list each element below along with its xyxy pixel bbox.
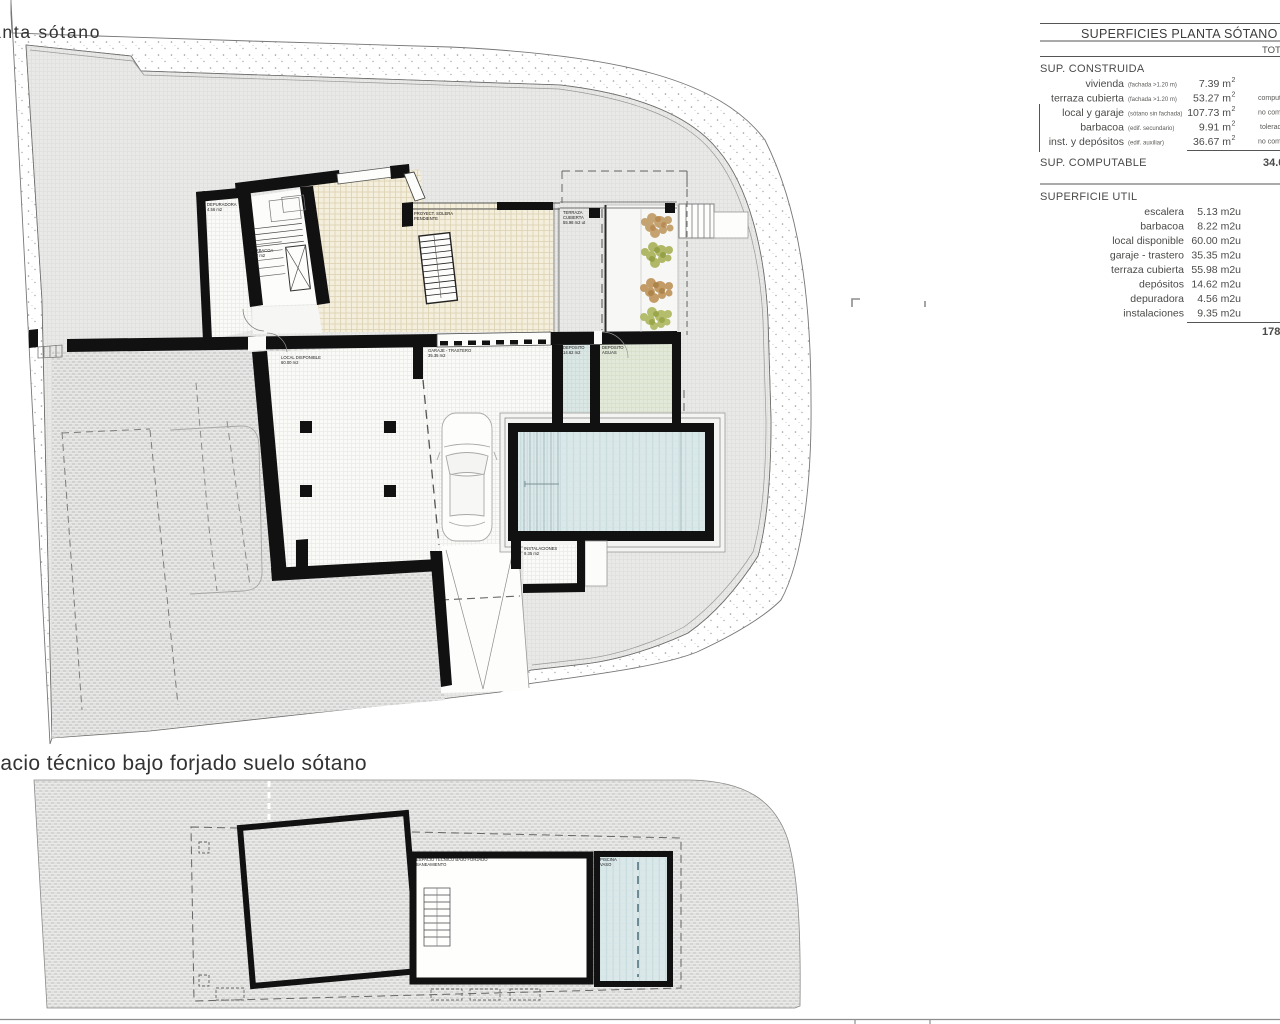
svg-text:2: 2: [1232, 92, 1236, 99]
svg-text:2: 2: [1232, 77, 1236, 84]
svg-text:local disponible: local disponible: [1112, 235, 1184, 247]
svg-text:8.22 m2: 8.22 m2: [250, 253, 266, 258]
svg-text:53.27 m: 53.27 m: [1193, 93, 1231, 105]
svg-text:4.56 m2: 4.56 m2: [207, 207, 223, 212]
svg-text:terraza cubierta: terraza cubierta: [1111, 264, 1184, 276]
svg-text:barbacoa: barbacoa: [1080, 122, 1124, 134]
svg-text:14.62 m2: 14.62 m2: [563, 350, 581, 355]
svg-text:(fachada >1.20 m): (fachada >1.20 m): [1128, 97, 1177, 103]
svg-text:(sótano sin fachada): (sótano sin fachada): [1128, 112, 1182, 118]
svg-text:instalaciones: instalaciones: [1123, 308, 1184, 320]
svg-text:2: 2: [1232, 121, 1236, 128]
svg-text:35.35 m2u: 35.35 m2u: [1191, 250, 1241, 262]
svg-text:inst. y depósitos: inst. y depósitos: [1049, 136, 1124, 148]
svg-text:escalera: escalera: [1144, 206, 1184, 218]
svg-text:55.98 m2u: 55.98 m2u: [1191, 264, 1241, 276]
svg-text:terraza cubierta: terraza cubierta: [1051, 93, 1124, 105]
svg-text:computa: computa: [1258, 95, 1280, 102]
svg-text:TOTAL: TOTAL: [1262, 45, 1280, 56]
svg-text:SANEAMIENTO: SANEAMIENTO: [416, 862, 447, 867]
svg-text:vivienda: vivienda: [1085, 78, 1124, 90]
svg-text:SUPERFICIE UTIL: SUPERFICIE UTIL: [1040, 191, 1137, 203]
svg-text:35.35 m2: 35.35 m2: [428, 353, 446, 358]
svg-text:SUP. COMPUTABLE: SUP. COMPUTABLE: [1040, 157, 1147, 169]
svg-text:2: 2: [1232, 106, 1236, 113]
svg-text:depósitos: depósitos: [1139, 279, 1184, 291]
svg-text:barbacoa: barbacoa: [1140, 221, 1184, 233]
svg-text:5.13 m2u: 5.13 m2u: [1197, 206, 1241, 218]
svg-text:SUPERFICIES PLANTA SÓTANO: SUPERFICIES PLANTA SÓTANO: [1081, 26, 1278, 41]
svg-text:107.73 m: 107.73 m: [1187, 107, 1231, 119]
svg-text:14.62 m2u: 14.62 m2u: [1191, 279, 1241, 291]
svg-text:9.91 m: 9.91 m: [1199, 122, 1231, 134]
svg-text:local y garaje: local y garaje: [1062, 107, 1124, 119]
svg-text:garaje - trastero: garaje - trastero: [1110, 250, 1184, 262]
svg-text:(edif. auxiliar): (edif. auxiliar): [1128, 141, 1164, 147]
svg-text:9.35 m2u: 9.35 m2u: [1197, 308, 1241, 320]
svg-text:7.39 m: 7.39 m: [1199, 78, 1231, 90]
svg-text:178.56: 178.56: [1262, 326, 1280, 338]
svg-text:36.67 m: 36.67 m: [1193, 136, 1231, 148]
svg-text:no comp: no comp: [1258, 139, 1280, 146]
svg-text:depuradora: depuradora: [1130, 293, 1184, 305]
svg-text:9.35 m2: 9.35 m2: [524, 551, 540, 556]
svg-text:Espacio técnico bajo forjado s: Espacio técnico bajo forjado suelo sótan…: [0, 752, 367, 775]
svg-text:4.56 m2u: 4.56 m2u: [1197, 293, 1241, 305]
svg-text:PENDIENTE: PENDIENTE: [414, 216, 438, 221]
svg-text:no comp: no comp: [1258, 110, 1280, 117]
svg-text:Planta sótano: Planta sótano: [0, 22, 101, 42]
svg-text:55.98 m2 ut: 55.98 m2 ut: [563, 220, 586, 225]
svg-text:2: 2: [1232, 135, 1236, 142]
svg-text:34.06: 34.06: [1263, 157, 1280, 169]
svg-text:SUP. CONSTRUIDA: SUP. CONSTRUIDA: [1040, 63, 1145, 75]
svg-text:(edif. secundario): (edif. secundario): [1128, 126, 1174, 132]
svg-text:AGUAS: AGUAS: [602, 350, 617, 355]
svg-text:60.00 m2u: 60.00 m2u: [1191, 235, 1241, 247]
svg-text:8.22 m2u: 8.22 m2u: [1197, 221, 1241, 233]
svg-text:tolerad: tolerad: [1260, 124, 1280, 131]
svg-text:60.00 m2: 60.00 m2: [281, 360, 299, 365]
svg-text:(fachada >1.20 m): (fachada >1.20 m): [1128, 83, 1177, 89]
svg-text:VASO: VASO: [600, 862, 612, 867]
